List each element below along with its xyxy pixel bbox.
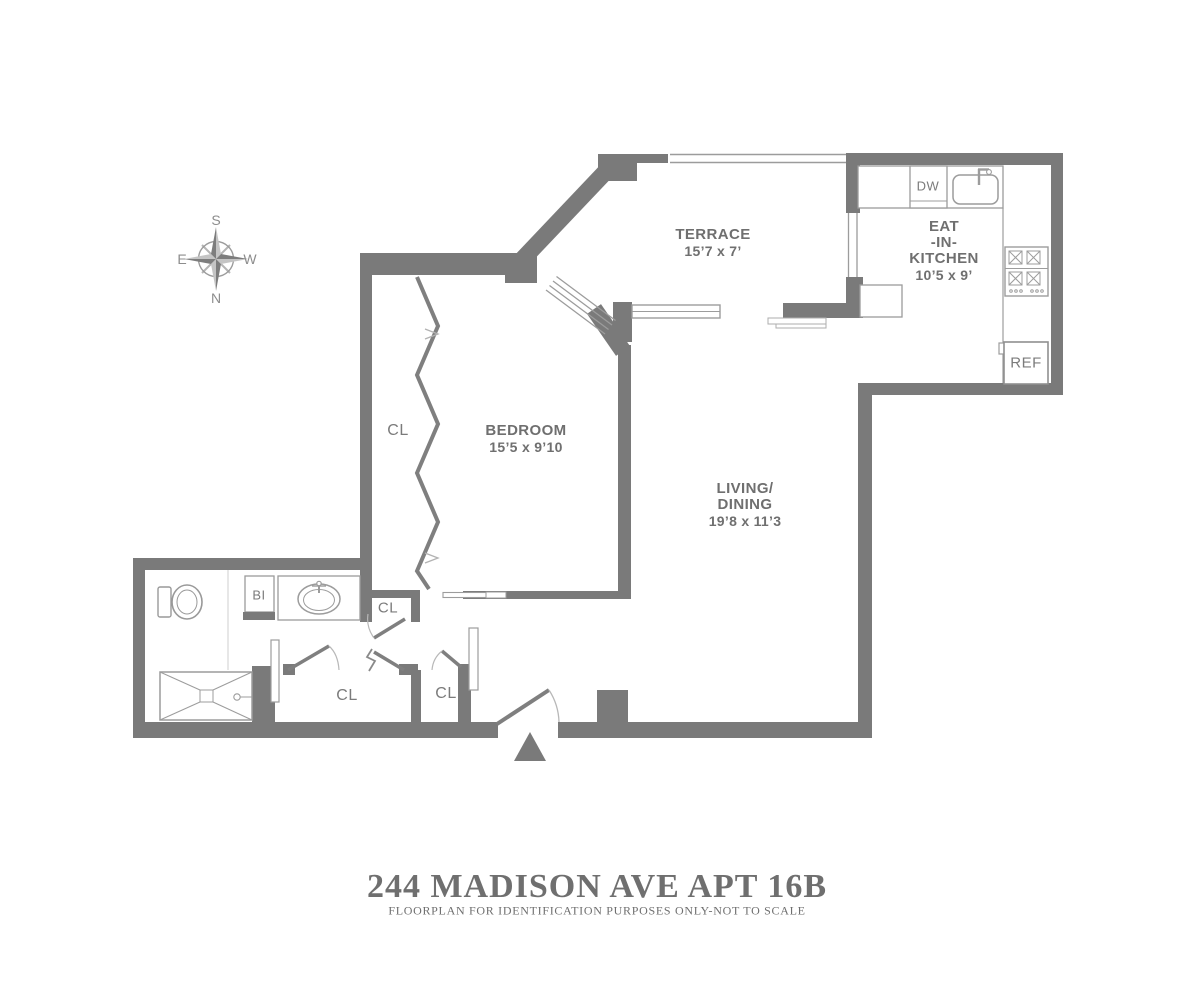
entry-door	[497, 690, 559, 724]
refrigerator-label: REF	[1010, 355, 1042, 372]
living-dims: 19’8 x 11’3	[709, 513, 782, 529]
living-name-line1: LIVING/	[709, 481, 782, 497]
terrace-dims: 15’7 x 7’	[675, 243, 750, 259]
compass-east: E	[177, 251, 186, 267]
compass-north: N	[211, 290, 221, 306]
kitchen-name-line3: KITCHEN	[909, 251, 978, 267]
closet-bedroom-label: CL	[387, 422, 408, 440]
foyer-closet-right-door	[432, 628, 478, 690]
living-label: LIVING/ DINING 19’8 x 11’3	[709, 481, 782, 529]
dishwasher-label: DW	[917, 179, 940, 194]
page-title: 244 MADISON AVE APT 16B	[367, 868, 827, 906]
terrace-door-threshold	[768, 318, 826, 328]
kitchen-name-line1: EAT	[909, 219, 978, 235]
bedroom-pocket-door	[443, 592, 506, 598]
closet-foyer-right-label: CL	[435, 685, 456, 703]
stove-icon	[1005, 247, 1048, 296]
terrace-name: TERRACE	[675, 227, 750, 243]
bedroom-label: BEDROOM 15’5 x 9’10	[485, 423, 566, 455]
compass-south: S	[211, 212, 220, 228]
closet-foyer-left-label: CL	[336, 687, 357, 705]
toilet-icon	[158, 585, 202, 619]
kitchen-label: EAT -IN- KITCHEN 10’5 x 9’	[909, 219, 978, 283]
shower-icon	[160, 672, 252, 720]
living-name-line2: DINING	[709, 497, 782, 513]
terrace-label: TERRACE 15’7 x 7’	[675, 227, 750, 259]
built-in-label: BI	[252, 588, 265, 603]
foyer-closet-left-doors	[288, 646, 404, 671]
floorplan-page: TERRACE 15’7 x 7’ EAT -IN- KITCHEN 10’5 …	[0, 0, 1190, 1000]
entry-arrow-icon	[514, 732, 546, 761]
bathroom-sink-icon	[278, 576, 360, 620]
kitchen-dims: 10’5 x 9’	[909, 267, 978, 283]
kitchen-window	[849, 213, 858, 277]
hall-closet-door	[368, 614, 405, 638]
compass-west: W	[243, 251, 256, 267]
bedroom-closet-accordion-door	[417, 277, 438, 589]
bedroom-dims: 15’5 x 9’10	[485, 439, 566, 455]
diagonal-walls	[519, 165, 623, 351]
page-disclaimer: FLOORPLAN FOR IDENTIFICATION PURPOSES ON…	[388, 904, 805, 919]
bathroom-door	[271, 640, 279, 702]
floorplan-drawing	[0, 0, 1190, 1000]
bedroom-name: BEDROOM	[485, 423, 566, 439]
kitchen-name-line2: -IN-	[909, 235, 978, 251]
closet-hall-label: CL	[378, 600, 398, 617]
compass-icon	[184, 227, 248, 291]
